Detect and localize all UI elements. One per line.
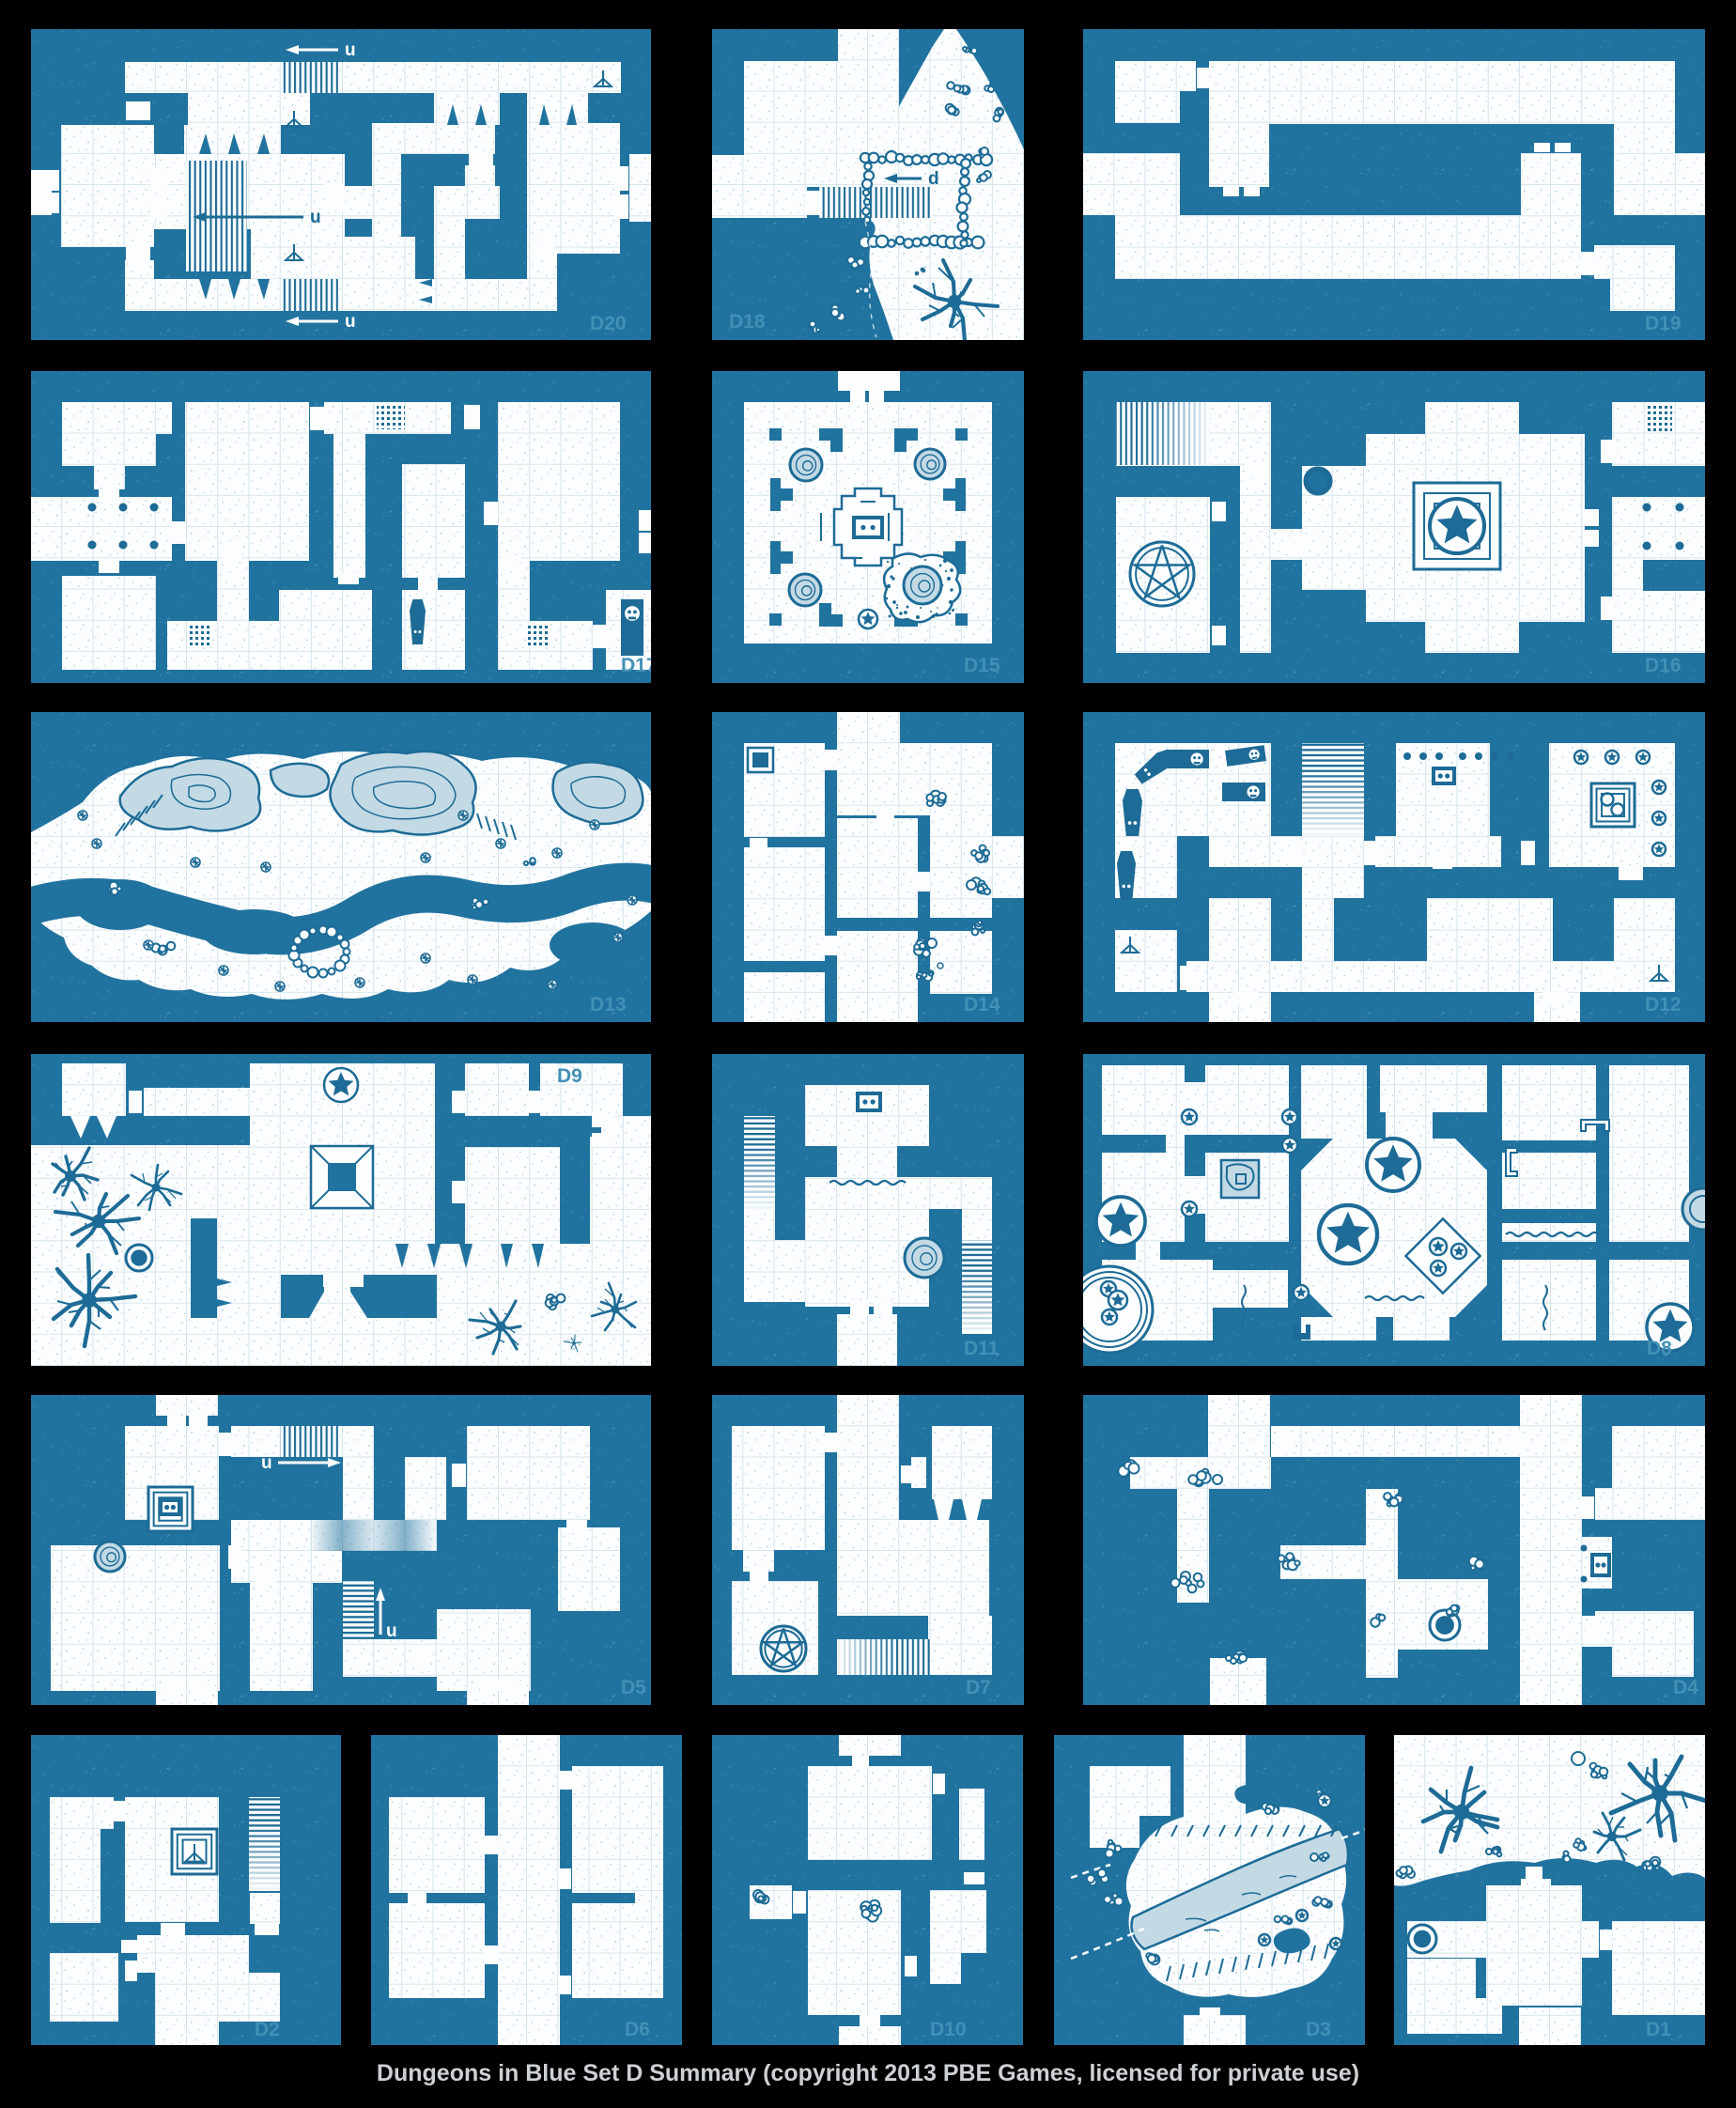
svg-text:D14: D14 <box>964 994 1000 1015</box>
svg-text:D10: D10 <box>930 2019 967 2040</box>
svg-text:D3: D3 <box>1306 2019 1331 2040</box>
svg-text:D19: D19 <box>1645 313 1682 334</box>
svg-text:D9: D9 <box>557 1065 582 1087</box>
svg-text:u: u <box>310 208 321 227</box>
svg-text:u: u <box>386 1621 397 1641</box>
svg-text:D13: D13 <box>590 994 627 1015</box>
svg-text:D20: D20 <box>590 313 627 334</box>
svg-text:D6: D6 <box>625 2019 650 2040</box>
svg-text:u: u <box>261 1453 272 1473</box>
svg-text:D11: D11 <box>964 1338 1000 1359</box>
svg-text:Dungeons in Blue Set D Summary: Dungeons in Blue Set D Summary (copyrigh… <box>377 2060 1359 2086</box>
svg-text:u: u <box>345 40 356 60</box>
svg-text:D2: D2 <box>255 2019 280 2040</box>
svg-text:d: d <box>928 169 939 189</box>
svg-text:D8: D8 <box>1647 1338 1672 1359</box>
svg-text:D18: D18 <box>729 311 766 333</box>
svg-text:u: u <box>345 312 356 332</box>
svg-text:D15: D15 <box>964 655 1000 676</box>
svg-text:D7: D7 <box>966 1677 991 1698</box>
svg-text:D16: D16 <box>1645 655 1682 676</box>
svg-text:D1: D1 <box>1646 2019 1671 2040</box>
svg-text:D12: D12 <box>1645 994 1682 1015</box>
svg-text:D5: D5 <box>621 1677 646 1698</box>
svg-text:D4: D4 <box>1673 1677 1698 1698</box>
